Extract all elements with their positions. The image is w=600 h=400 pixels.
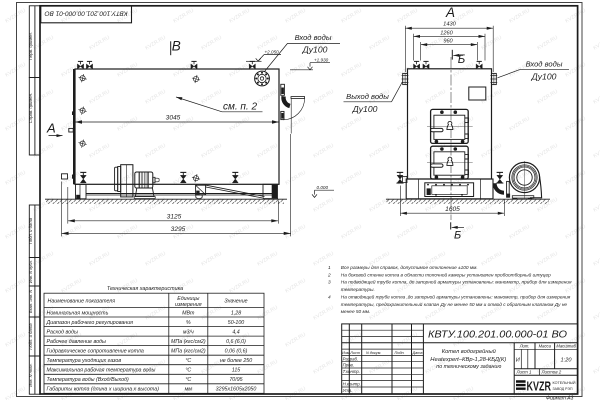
svg-text:KVZR: KVZR [527, 379, 552, 394]
svg-text:Перв. примен.: Перв. примен. [28, 32, 33, 60]
svg-text:В: В [172, 39, 181, 54]
svg-text:КВТУ.100.201.00.000-01 ВО: КВТУ.100.201.00.000-01 ВО [428, 329, 567, 340]
svg-text:Значение: Значение [224, 298, 247, 304]
svg-text:960: 960 [443, 39, 453, 45]
svg-text:На отводящей трубе котла ,до з: На отводящей трубе котла ,до запорной ар… [341, 294, 571, 301]
svg-text:0,6 (6,0): 0,6 (6,0) [226, 339, 246, 345]
svg-text:Котел водогрейный: Котел водогрейный [442, 348, 496, 355]
svg-text:Вход воды: Вход воды [295, 33, 332, 42]
svg-text:Выход воды: Выход воды [346, 92, 389, 101]
svg-text:%: % [186, 320, 191, 326]
svg-text:1:20: 1:20 [561, 358, 573, 364]
svg-text:Листов 2: Листов 2 [541, 370, 562, 375]
svg-text:Н.контр.: Н.контр. [343, 382, 361, 387]
svg-text:°С: °С [185, 368, 191, 374]
svg-text:Гидравлическое сопротивление к: Гидравлическое сопротивление котла [47, 349, 144, 355]
svg-text:3295х1605х2050: 3295х1605х2050 [216, 387, 257, 393]
svg-text:Heatexpert–КВр-1,28-КБД(К): Heatexpert–КВр-1,28-КБД(К) [430, 357, 506, 363]
svg-text:КВТУ.100.201.00.000-01 ВО: КВТУ.100.201.00.000-01 ВО [44, 10, 127, 17]
svg-text:измерения: измерения [175, 302, 202, 308]
svg-text:N докум.: N докум. [366, 351, 381, 355]
svg-text:Техническая характеристика: Техническая характеристика [107, 286, 183, 292]
svg-text:А: А [445, 5, 455, 20]
svg-text:3125: 3125 [167, 213, 182, 220]
svg-text:1: 1 [328, 265, 331, 271]
svg-text:°С: °С [185, 377, 191, 383]
svg-text:Взам. инв. N: Взам. инв. N [28, 290, 33, 313]
svg-text:А: А [46, 121, 56, 136]
svg-text:4,4: 4,4 [232, 329, 239, 335]
svg-text:3045: 3045 [166, 115, 181, 122]
svg-text:Максимальная рабочая температу: Максимальная рабочая температура воды [47, 368, 156, 374]
svg-text:Лист 1: Лист 1 [516, 370, 533, 375]
svg-text:Вход воды: Вход воды [526, 60, 563, 69]
svg-text:Диапазон рабочего регулировани: Диапазон рабочего регулирования [46, 320, 134, 326]
svg-text:МПа (кгс/см2): МПа (кгс/см2) [171, 349, 206, 355]
svg-text:температуры, предохранительный: температуры, предохранительный клапан Ду… [341, 301, 568, 308]
svg-text:Изм.: Изм. [342, 351, 350, 355]
svg-text:Т.контр.: Т.контр. [343, 369, 360, 374]
svg-text:Подп.: Подп. [395, 351, 405, 355]
svg-text:температуры.: температуры. [341, 288, 375, 293]
svg-text:Масса: Масса [539, 344, 552, 349]
svg-text:Подп. и дата: Подп. и дата [28, 323, 33, 350]
svg-text:Б: Б [454, 230, 461, 242]
svg-text:Рабочее давление воды: Рабочее давление воды [47, 339, 106, 345]
svg-text:70/95: 70/95 [229, 377, 242, 383]
svg-text:по техническому заданию: по техническому заданию [436, 364, 501, 370]
svg-text:мм: мм [185, 387, 193, 393]
svg-text:Справ. примен.: Справ. примен. [28, 93, 33, 123]
svg-text:Ду100: Ду100 [302, 45, 328, 55]
svg-text:Расход воды: Расход воды [47, 329, 78, 335]
svg-text:Подп. и дата: Подп. и дата [28, 217, 33, 244]
svg-text:1605: 1605 [445, 206, 460, 213]
svg-text:Ду100: Ду100 [531, 71, 557, 81]
svg-text:Ду100: Ду100 [352, 104, 378, 114]
svg-text:0,06 (0,6): 0,06 (0,6) [225, 349, 248, 355]
svg-text:Температура уходящих газов: Температура уходящих газов [47, 358, 122, 364]
svg-text:не более 250: не более 250 [220, 358, 252, 364]
svg-text:4: 4 [328, 295, 331, 301]
svg-text:см. п. 2: см. п. 2 [223, 102, 257, 113]
svg-text:Инв. N подл.: Инв. N подл. [28, 363, 33, 386]
svg-text:Номинальная мощность: Номинальная мощность [47, 310, 109, 316]
svg-text:Все размеры для справок, допус: Все размеры для справок, допустимое откл… [341, 265, 478, 271]
svg-text:Габариты котла (длина х ширина: Габариты котла (длина х ширина х высота) [47, 387, 160, 393]
svg-text:1260: 1260 [440, 30, 453, 36]
svg-text:Наименование показателя: Наименование показателя [48, 298, 116, 304]
svg-text:50-100: 50-100 [228, 320, 245, 326]
svg-text:КОТЕЛЬНЫЙ: КОТЕЛЬНЫЙ [553, 380, 576, 385]
svg-text:Пров.: Пров. [343, 363, 354, 368]
svg-text:Лист: Лист [349, 351, 360, 355]
svg-text:Инв. N дубл.: Инв. N дубл. [28, 260, 33, 283]
svg-text:Температура воды (Вход/Выход): Температура воды (Вход/Выход) [47, 377, 129, 383]
svg-text:менее 50 мм.: менее 50 мм. [341, 309, 371, 315]
svg-text:Дата: Дата [412, 351, 423, 355]
svg-text:+2.050: +2.050 [265, 49, 280, 54]
svg-text:+1.930: +1.930 [314, 57, 329, 62]
svg-text:МВт: МВт [182, 310, 195, 316]
svg-text:На боковой стенке котла в обла: На боковой стенке котла в области топочн… [341, 271, 551, 278]
svg-text:Лит.: Лит. [519, 344, 530, 349]
svg-text:Б: Б [458, 54, 466, 66]
svg-text:И: И [516, 358, 520, 364]
svg-text:м3/ч: м3/ч [183, 329, 194, 335]
svg-text:115: 115 [232, 368, 240, 374]
svg-text:1430: 1430 [443, 22, 456, 28]
svg-text:0.000: 0.000 [317, 185, 329, 190]
svg-text:Масштаб: Масштаб [556, 344, 576, 349]
svg-text:Формат А3: Формат А3 [546, 396, 574, 400]
svg-text:1,28: 1,28 [231, 310, 241, 316]
svg-text:°С: °С [185, 358, 191, 364]
svg-text:3295: 3295 [171, 226, 186, 233]
svg-text:3: 3 [328, 280, 331, 286]
svg-text:2: 2 [327, 272, 331, 278]
svg-text:Разраб.: Разраб. [343, 356, 359, 361]
svg-text:На подводящей трубе котла, д: На подводящей трубе котла, до запорной а… [341, 279, 572, 286]
svg-text:МПа (кгс/см2): МПа (кгс/см2) [171, 339, 206, 345]
svg-text:Утв.: Утв. [343, 388, 353, 393]
svg-text:ЗАВОД РЭП: ЗАВОД РЭП [553, 386, 573, 391]
